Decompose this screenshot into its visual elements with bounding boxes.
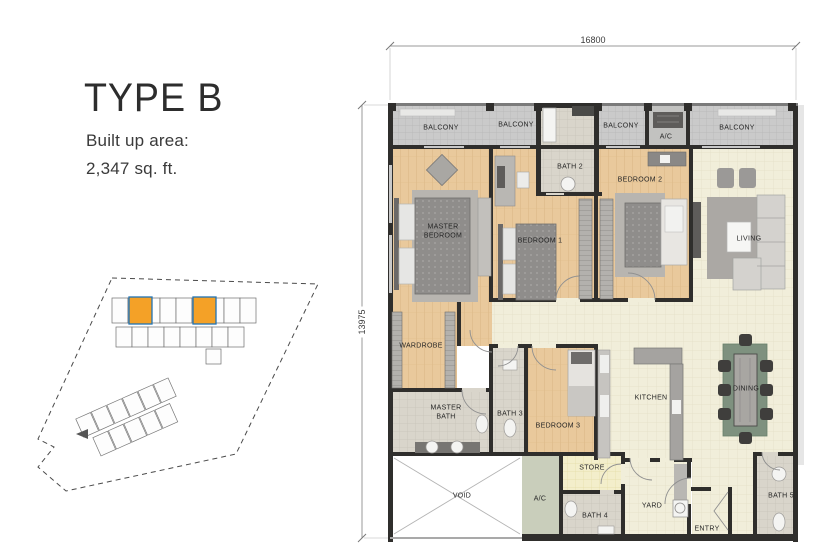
ottoman-2: [739, 168, 756, 188]
room-label-dining: DINING: [733, 386, 759, 395]
bath2-tub: [543, 108, 556, 142]
bedroom2-pillow: [665, 206, 683, 232]
room-label-living: LIVING: [737, 236, 762, 245]
room-label-balcony-a: BALCONY: [423, 125, 459, 134]
void-bottom-line: [390, 537, 522, 539]
bath4-toilet: [565, 501, 577, 517]
room-label-yard: YARD: [642, 503, 662, 512]
bath2-shelf: [572, 106, 594, 116]
floor-plan-sheet: TYPE B Built up area: 2,347 sq. ft. 1680…: [0, 0, 838, 555]
room-label-balcony-d: BALCONY: [719, 125, 755, 134]
bedroom1-headboard: [498, 224, 503, 300]
room-label-kitchen: KITCHEN: [635, 395, 668, 404]
ac-unit-upper: [653, 112, 683, 128]
wall-entry-right: [728, 487, 732, 538]
room-label-store: STORE: [579, 465, 605, 474]
room-label-bedroom1: BEDROOM 1: [518, 238, 563, 247]
bath2-bottom-wall: [536, 192, 602, 196]
master-dresser: [478, 198, 491, 276]
bedroom1-bed: [516, 224, 556, 300]
site-key-map: [38, 278, 318, 491]
room-label-entry: ENTRY: [694, 526, 719, 535]
room-label-void: VOID: [453, 493, 471, 502]
kitchen-counter-top: [634, 348, 682, 364]
room-label-bedroom3: BEDROOM 3: [536, 423, 581, 432]
room-label-ac-upper: A/C: [660, 134, 673, 143]
yard-furniture: [673, 464, 688, 517]
bath5-toilet: [773, 513, 785, 531]
room-label-master-bedroom: MASTER BEDROOM: [417, 223, 469, 241]
exterior-strip: [798, 105, 804, 465]
kitchen-sink: [600, 395, 609, 417]
hallway-floor: [492, 302, 692, 348]
room-label-bedroom2: BEDROOM 2: [618, 177, 663, 186]
bedroom1-chair: [517, 172, 529, 188]
wardrobe-right-stub: [457, 302, 461, 346]
plan-type-title: TYPE B: [84, 76, 223, 121]
wall-bedroom1-right: [594, 196, 598, 302]
ottoman-1: [717, 168, 734, 188]
site-units-lower-cluster: [76, 378, 186, 459]
room-label-wardrobe: WARDROBE: [399, 343, 442, 352]
sofa-chaise: [733, 258, 761, 290]
bedroom1-pillow: [503, 228, 516, 260]
wall-entry-top: [691, 487, 711, 491]
bath2-sink: [561, 177, 575, 191]
master-vanity: [415, 442, 480, 453]
master-pillow-2: [399, 248, 415, 284]
bedroom1-monitor: [497, 166, 505, 188]
bedroom2-dresser-item: [660, 155, 670, 163]
built-up-value: 2,347 sq. ft.: [86, 159, 177, 179]
bath3-toilet: [504, 419, 516, 437]
highlighted-unit-2: [193, 297, 216, 324]
master-toilet: [476, 415, 488, 433]
fridge: [600, 355, 609, 373]
bedroom3-blanket: [568, 386, 595, 416]
built-up-label: Built up area:: [86, 131, 189, 151]
site-units-row-2: [116, 327, 244, 364]
balcony-bench-2: [718, 109, 776, 116]
master-bed: [415, 198, 470, 294]
wall-store-bath4: [559, 490, 625, 494]
master-sink-2: [451, 441, 463, 453]
window-left-1: [389, 165, 392, 223]
room-label-master-bath: MASTER BATH: [424, 404, 468, 422]
wall-bath5-left: [753, 452, 757, 538]
room-label-balcony-c: BALCONY: [603, 123, 639, 132]
dimension-height: 13975: [357, 306, 367, 337]
master-corridor-floor: [457, 302, 492, 346]
yard-cabinet: [674, 464, 687, 500]
bedroom2-bed: [625, 203, 661, 267]
master-sink-1: [426, 441, 438, 453]
dimension-width: 16800: [577, 35, 608, 45]
bath4-sink: [598, 526, 614, 534]
balcony-bench: [400, 109, 455, 116]
bedroom3-furniture: [568, 350, 595, 416]
room-label-bath4: BATH 4: [582, 513, 608, 522]
highlighted-unit-1: [129, 297, 152, 324]
room-label-bath5: BATH 5: [768, 493, 794, 502]
counter-sink: [672, 400, 681, 414]
room-label-bath3: BATH 3: [497, 411, 523, 420]
room-label-balcony-b: BALCONY: [498, 122, 534, 131]
room-label-ac-lower: A/C: [534, 496, 547, 505]
bedroom1-pillow-2: [503, 264, 516, 294]
master-pillow-1: [399, 204, 415, 240]
bedroom3-pillow: [571, 352, 592, 364]
master-headboard: [394, 198, 399, 290]
wall-bedroom2-living: [689, 148, 693, 302]
room-label-bath2: BATH 2: [557, 164, 583, 173]
outer-wall-right: [793, 103, 798, 542]
store-floor: [562, 456, 622, 492]
window-left-2: [389, 235, 392, 293]
tv-console: [693, 202, 701, 258]
